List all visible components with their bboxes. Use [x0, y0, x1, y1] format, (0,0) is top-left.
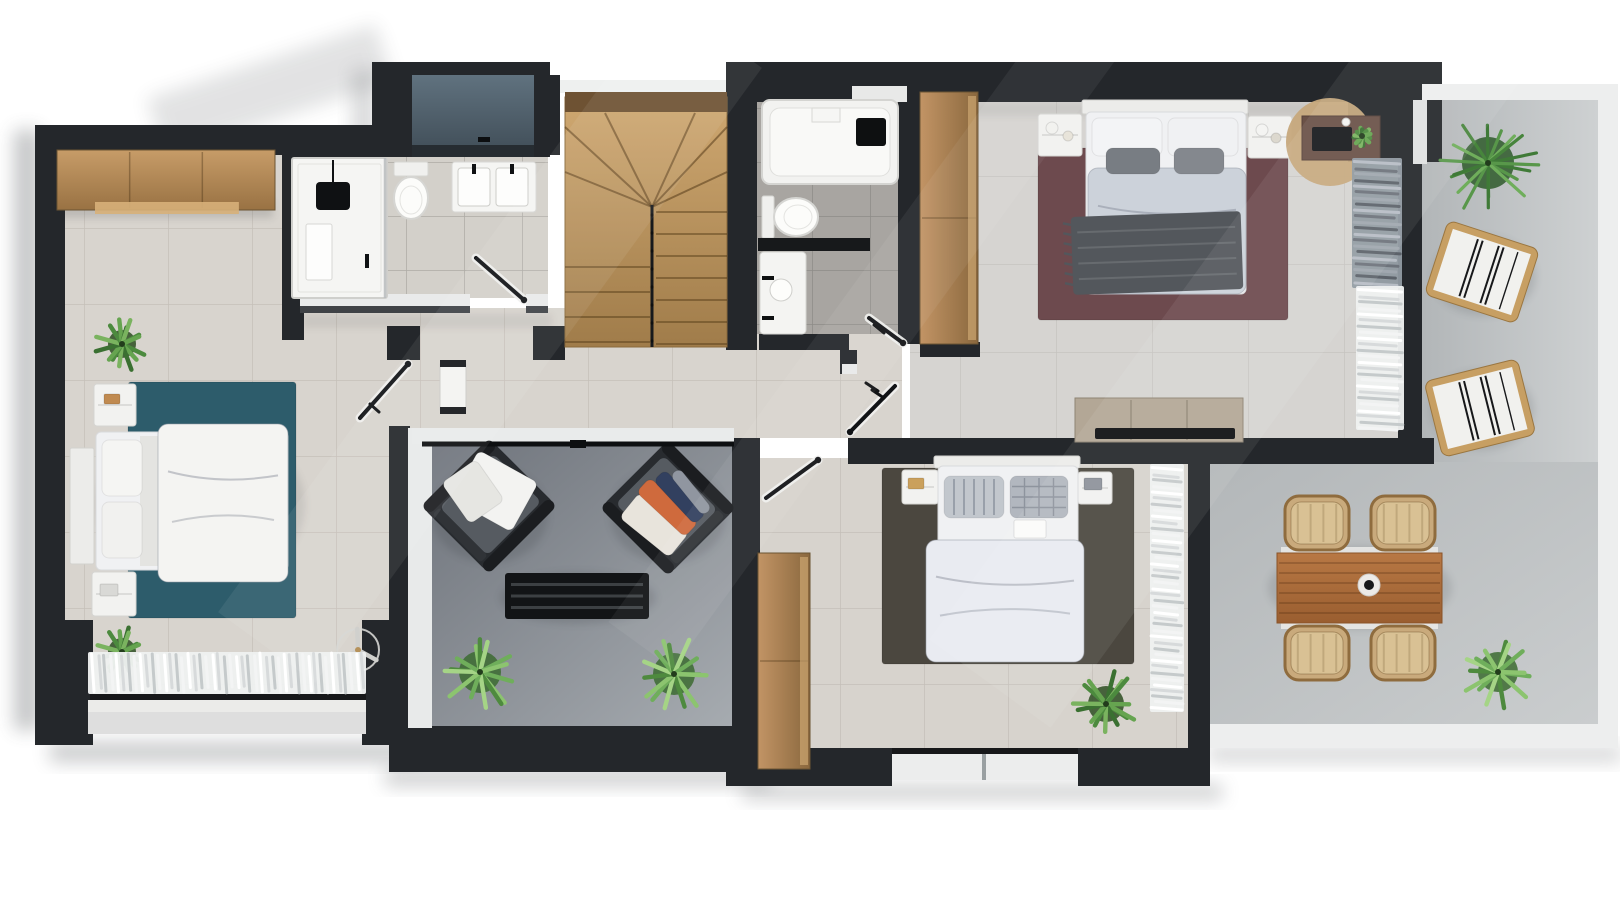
wall	[389, 726, 762, 772]
curtain-master-white	[1356, 286, 1404, 430]
bed-left-bedroom	[70, 424, 288, 582]
left-window-ledge	[88, 712, 366, 734]
wardrobe-left-bedroom	[57, 150, 275, 214]
terrace-parapet-bottom	[1210, 724, 1618, 748]
table-candle	[1358, 574, 1380, 596]
dining-chair-1	[1285, 496, 1349, 550]
wardrobe-back-bedroom	[758, 553, 810, 769]
bath2-shelf	[758, 238, 870, 251]
floor-plan	[0, 0, 1620, 911]
wall	[1078, 748, 1210, 786]
wall	[726, 75, 757, 350]
floor-plan-svg	[0, 0, 1620, 911]
left-window-frame	[90, 694, 366, 700]
wall	[35, 620, 93, 745]
nightstand-left-top	[94, 384, 136, 426]
nightstand-back-left	[902, 470, 938, 504]
dining-chair-2	[1371, 496, 1435, 550]
back-window-mullion	[982, 754, 986, 780]
bathtub	[762, 100, 898, 184]
toilet-bath1	[394, 162, 428, 219]
nightstand-left-bottom	[92, 572, 136, 616]
terrace-parapet-right	[1598, 84, 1618, 748]
building-shadow	[1208, 746, 1620, 762]
wall	[535, 75, 560, 155]
laundry-counter	[412, 75, 534, 157]
shower	[292, 158, 387, 298]
dining-chair-3	[1285, 626, 1349, 680]
building-shadow	[742, 784, 1222, 800]
washbasin-bath2	[760, 252, 806, 334]
dining-chair-4	[1371, 626, 1435, 680]
left-window-sill	[88, 700, 366, 712]
toilet-bath2	[762, 196, 818, 238]
back-window-frame	[892, 748, 1078, 754]
